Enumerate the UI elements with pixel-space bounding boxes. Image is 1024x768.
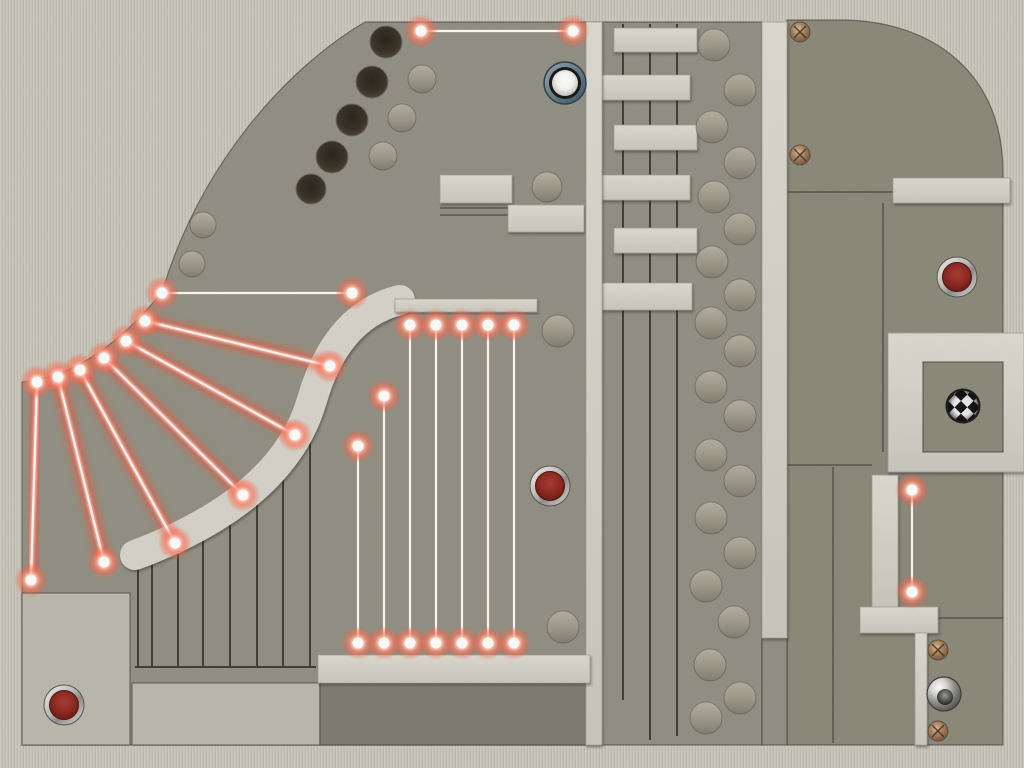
laser-post: [405, 320, 416, 331]
laser-post: [907, 485, 918, 496]
laser-post: [379, 638, 390, 649]
laser-post: [509, 638, 520, 649]
bump: [718, 606, 750, 638]
wall-block: [872, 475, 898, 607]
bump: [369, 142, 397, 170]
hole: [316, 141, 348, 173]
hole: [370, 26, 402, 58]
bump: [696, 246, 728, 278]
red-button[interactable]: [536, 472, 565, 501]
laser-post: [405, 638, 416, 649]
laser-post: [32, 377, 43, 388]
bump: [547, 611, 579, 643]
bump: [695, 371, 727, 403]
floor: [320, 683, 588, 745]
bump: [408, 65, 436, 93]
game-board: [0, 0, 1024, 768]
floor: [762, 638, 787, 745]
wall-block: [602, 175, 690, 200]
bump: [695, 307, 727, 339]
laser-post: [170, 538, 181, 549]
wall-block: [893, 178, 1010, 203]
board-canvas: [0, 0, 1024, 768]
metal-dome-reflection: [937, 689, 953, 705]
laser-post: [238, 490, 249, 501]
bump: [724, 279, 756, 311]
wall-block: [860, 607, 938, 633]
bump: [724, 74, 756, 106]
wall-block: [586, 22, 602, 745]
bump: [690, 570, 722, 602]
wall-block: [614, 125, 697, 150]
laser-post: [483, 320, 494, 331]
laser-post: [907, 587, 918, 598]
red-button[interactable]: [50, 691, 79, 720]
bump: [724, 682, 756, 714]
wall-block: [602, 283, 692, 310]
laser-post: [26, 575, 37, 586]
laser-post: [75, 365, 86, 376]
laser-post: [347, 288, 358, 299]
bump: [190, 212, 216, 238]
bump: [698, 181, 730, 213]
red-button[interactable]: [943, 263, 972, 292]
hole: [296, 174, 326, 204]
laser-post: [353, 638, 364, 649]
wall-block: [602, 75, 690, 100]
laser-post: [416, 26, 427, 37]
bump: [724, 537, 756, 569]
wall-block: [508, 205, 584, 232]
bump: [179, 251, 205, 277]
bump: [724, 335, 756, 367]
bump: [690, 702, 722, 734]
bump: [388, 104, 416, 132]
hole: [336, 104, 368, 136]
hole: [356, 66, 388, 98]
bump: [532, 172, 562, 202]
bump: [724, 213, 756, 245]
laser-post: [121, 336, 132, 347]
bump: [542, 315, 574, 347]
wall-block: [614, 228, 697, 253]
laser-post: [457, 638, 468, 649]
laser-post: [457, 320, 468, 331]
bump: [695, 439, 727, 471]
laser-post: [379, 391, 390, 402]
laser-post: [99, 557, 110, 568]
laser-post: [353, 441, 364, 452]
laser-post: [483, 638, 494, 649]
floor: [22, 593, 130, 745]
laser-post: [140, 316, 151, 327]
wall-block: [440, 175, 512, 203]
laser-post: [99, 353, 110, 364]
wall-block: [915, 633, 927, 745]
laser-post: [509, 320, 520, 331]
laser-post: [431, 638, 442, 649]
bump: [724, 147, 756, 179]
wall-block: [762, 22, 787, 638]
bump: [695, 502, 727, 534]
bump: [724, 400, 756, 432]
laser-post: [325, 361, 336, 372]
floor: [132, 683, 320, 745]
bump: [696, 111, 728, 143]
laser-post: [290, 430, 301, 441]
bump: [724, 465, 756, 497]
laser-post: [568, 26, 579, 37]
ball[interactable]: [552, 70, 578, 96]
bump: [698, 29, 730, 61]
laser-post: [53, 372, 64, 383]
laser-post: [431, 320, 442, 331]
bump: [694, 649, 726, 681]
wall-block: [614, 28, 697, 52]
laser-post: [157, 288, 168, 299]
goal-shading: [947, 390, 979, 422]
